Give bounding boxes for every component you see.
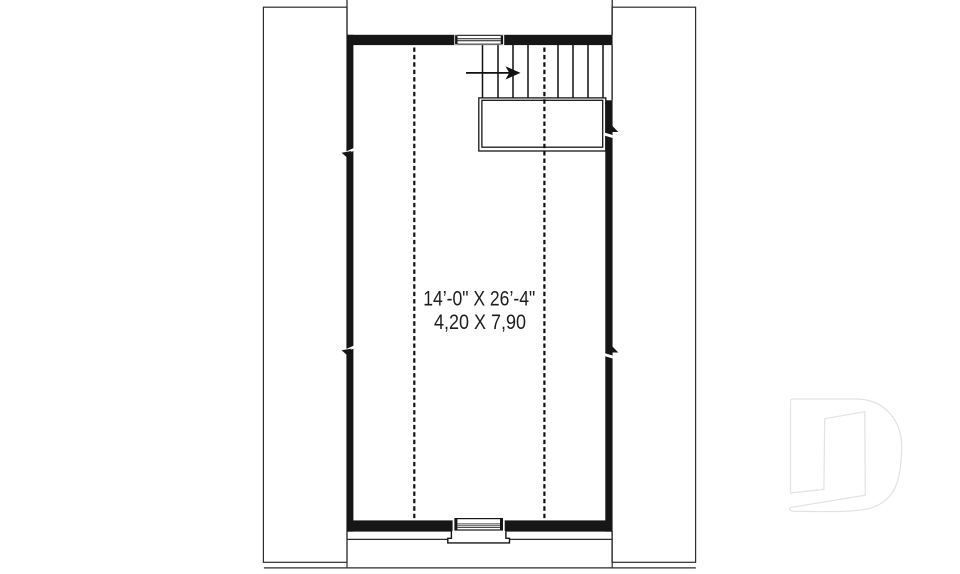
svg-text:4,20 X 7,90: 4,20 X 7,90 <box>434 310 526 334</box>
svg-text:14’-0" X 26’-4": 14’-0" X 26’-4" <box>423 286 535 310</box>
